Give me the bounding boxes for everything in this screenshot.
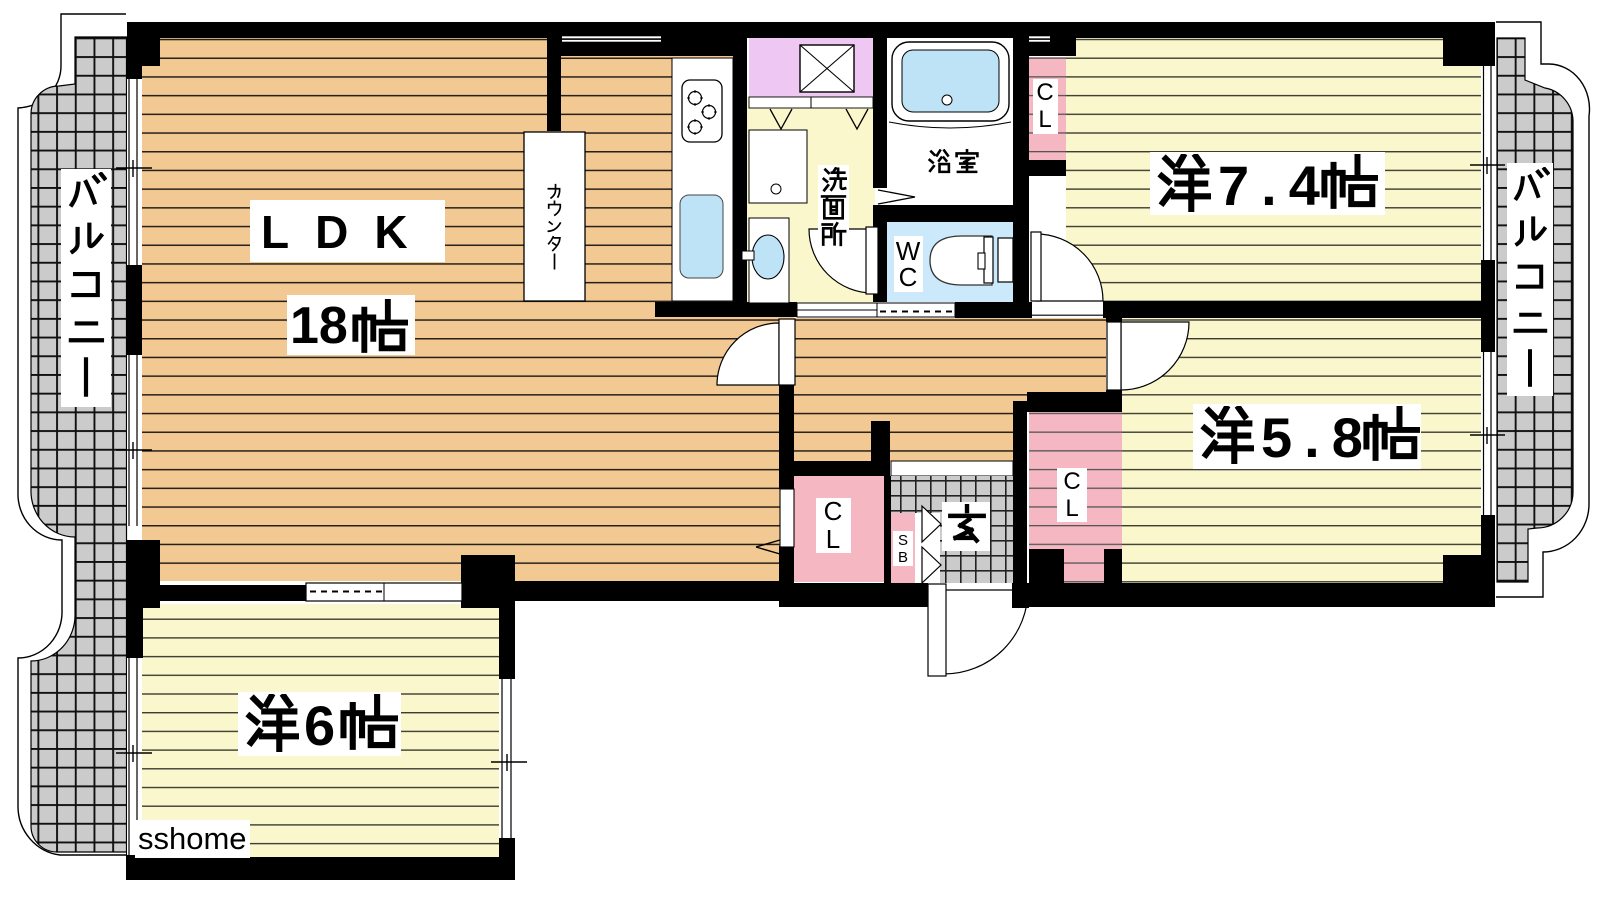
svg-text:L: L (1065, 495, 1078, 522)
svg-text:C: C (1063, 468, 1080, 495)
svg-text:L: L (1038, 106, 1051, 133)
svg-text:S: S (898, 532, 908, 549)
svg-text:7.4: 7.4 (1218, 154, 1332, 217)
svg-text:C: C (824, 496, 843, 526)
svg-text:5.8: 5.8 (1261, 406, 1375, 469)
svg-text:6: 6 (304, 694, 335, 757)
svg-text:sshome: sshome (138, 821, 247, 856)
svg-text:18: 18 (290, 297, 348, 355)
svg-text:C: C (899, 262, 918, 292)
svg-text:LDK: LDK (261, 206, 434, 258)
svg-text:C: C (1036, 79, 1053, 106)
svg-text:B: B (898, 549, 908, 566)
svg-text:L: L (826, 524, 840, 554)
